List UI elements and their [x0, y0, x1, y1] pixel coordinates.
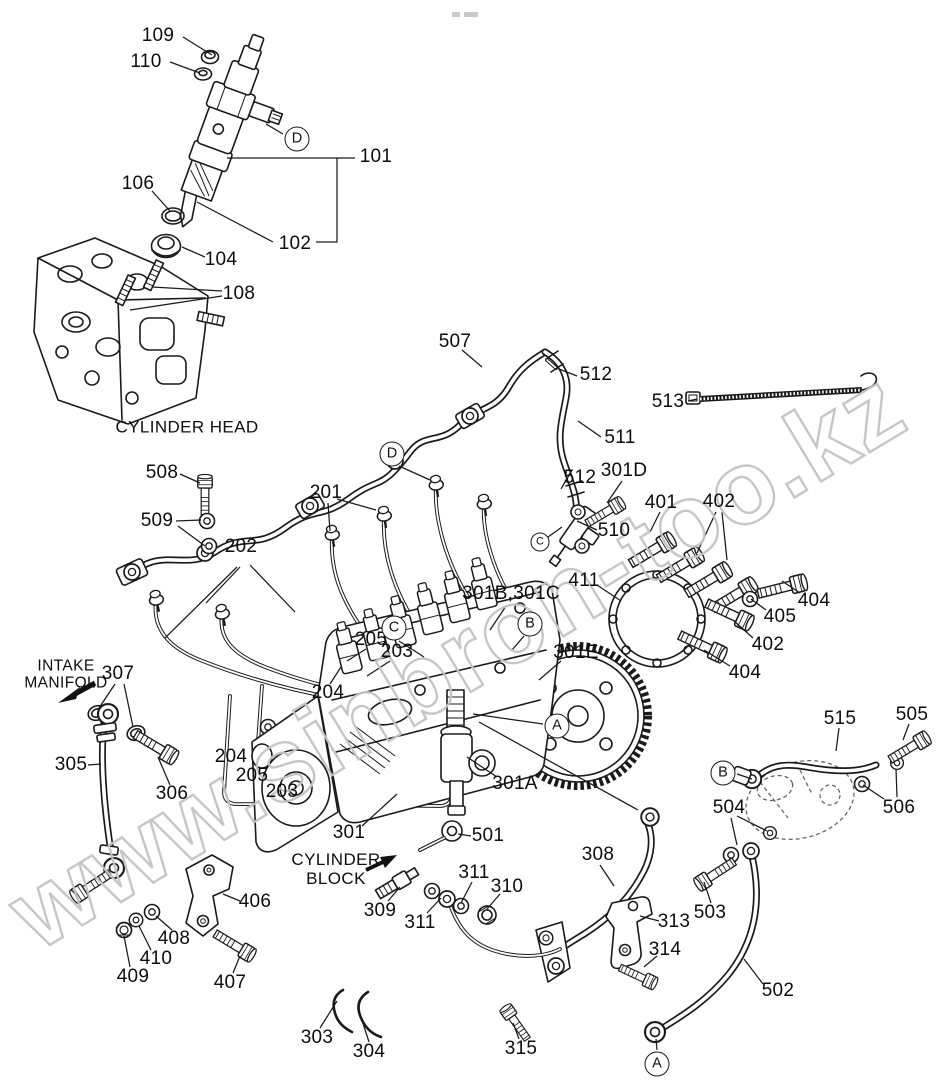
eyebolt-drawing: [198, 474, 217, 553]
intake-manifold-line2: MANIFOLD: [24, 675, 107, 692]
fuel-injection-parts-diagram: www.sinbron-too.kz CYLINDER HEAD INTAKE …: [0, 0, 944, 1091]
diagram-line-art: www.sinbron-too.kz: [0, 0, 944, 1091]
faint-print-marks: [452, 4, 492, 14]
cylinder-block-label: CYLINDER BLOCK: [291, 850, 380, 888]
cylinder-head-label: CYLINDER HEAD: [115, 417, 258, 436]
print-mark: [452, 12, 460, 17]
print-mark: [464, 12, 478, 17]
intake-manifold-label: INTAKE MANIFOLD: [24, 658, 107, 693]
watermark-text: www.sinbron-too.kz: [0, 347, 924, 972]
injector-drawing: [152, 27, 305, 257]
cylinder-block-line2: BLOCK: [291, 869, 380, 888]
cylinder-block-line1: CYLINDER: [291, 850, 380, 869]
return-hoses-drawing: [645, 730, 933, 1042]
cylinder-head-drawing: [34, 238, 224, 424]
intake-manifold-line1: INTAKE: [24, 658, 107, 675]
